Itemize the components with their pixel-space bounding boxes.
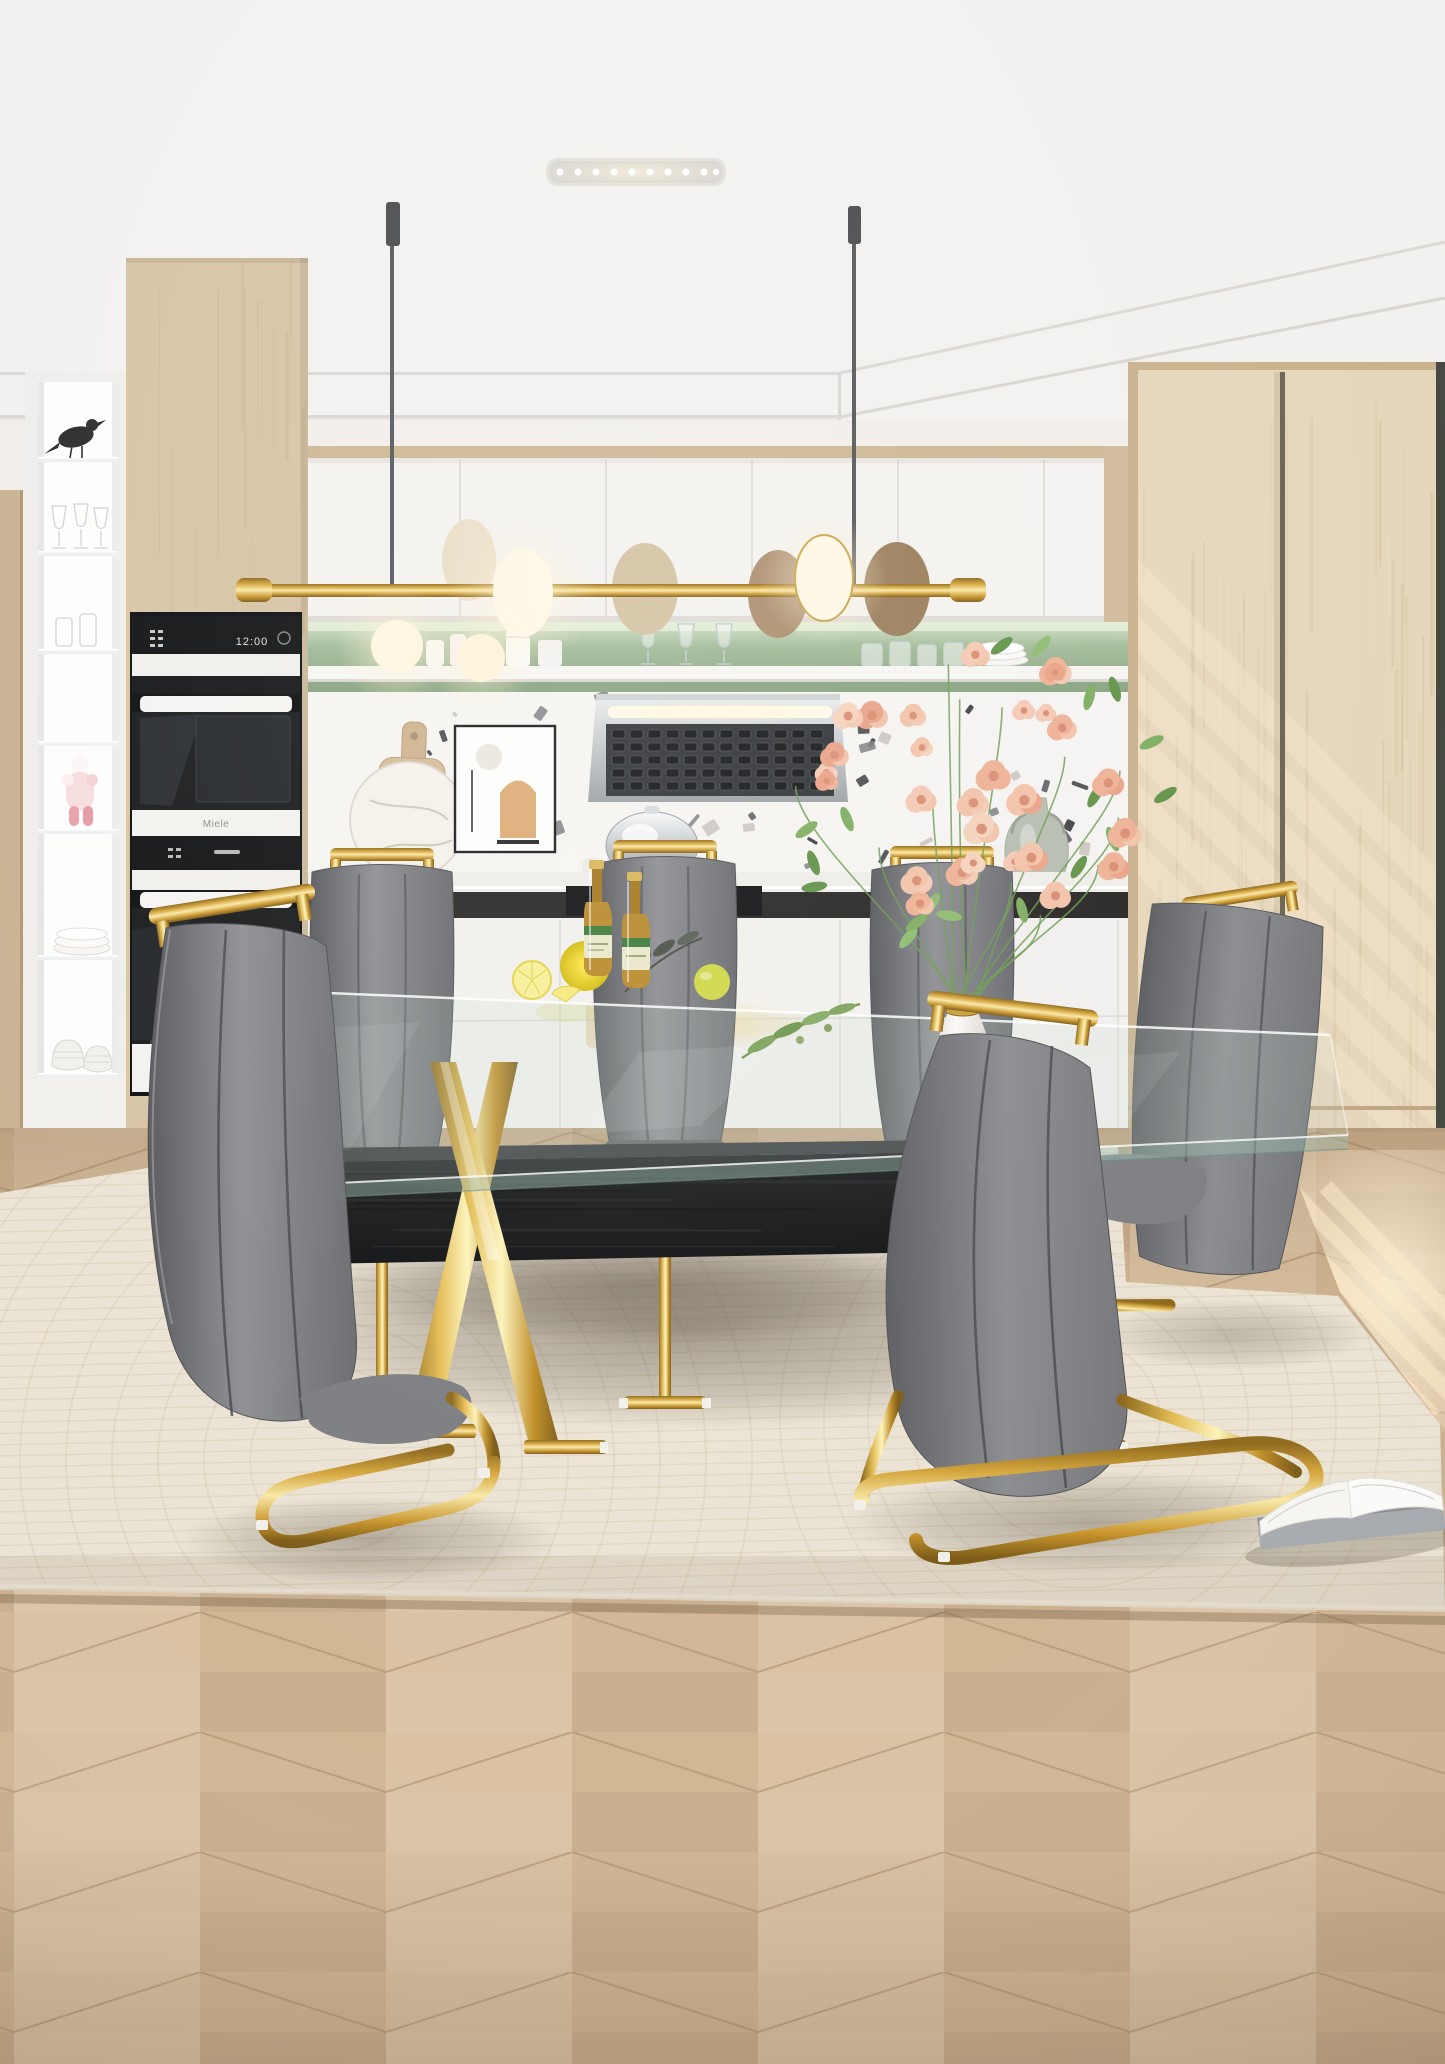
vignette-overlay	[0, 0, 1445, 2064]
kitchen-dining-scene: 12:00 Miele Miele	[0, 0, 1445, 2064]
scene-canvas: 12:00 Miele Miele	[0, 0, 1445, 2064]
